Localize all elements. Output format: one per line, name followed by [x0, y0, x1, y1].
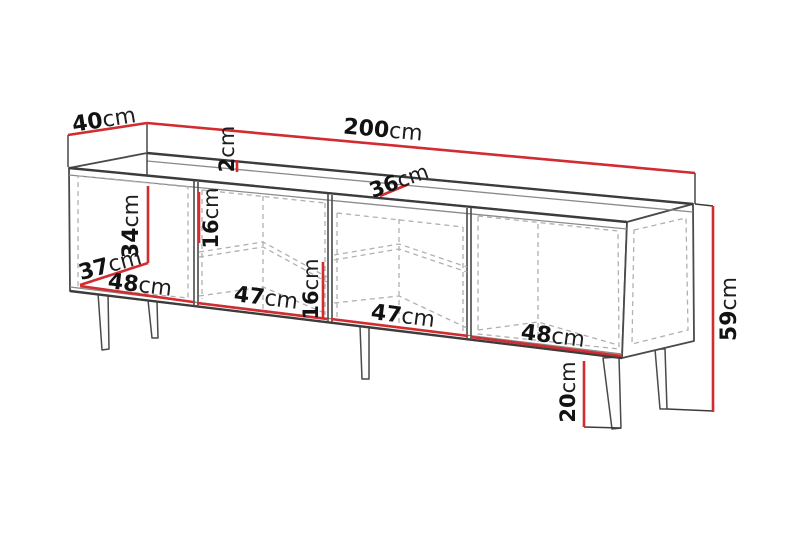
dim-label-leg-height: 20cm: [556, 361, 580, 422]
dim-label-total-height: 59cm: [717, 277, 742, 341]
leg-back-right: [655, 349, 667, 409]
leg-middle: [360, 326, 369, 379]
dim-label-upper-opening: 16cm: [199, 187, 223, 248]
right-face: [622, 204, 694, 358]
dim-label-depth: 40cm: [70, 103, 137, 138]
leg-front-left: [98, 293, 109, 350]
leg-front-right: [603, 357, 621, 429]
dim-label-top-thickness: 2cm: [215, 126, 239, 173]
furniture-dimension-diagram: 40cm 200cm 2cm 36cm 34cm 37cm 48cm 16cm …: [0, 0, 800, 533]
dim-label-lower-opening: 16cm: [299, 258, 323, 319]
leg-back-left: [148, 300, 158, 338]
diagram-stage: 40cm 200cm 2cm 36cm 34cm 37cm 48cm 16cm …: [0, 0, 800, 533]
